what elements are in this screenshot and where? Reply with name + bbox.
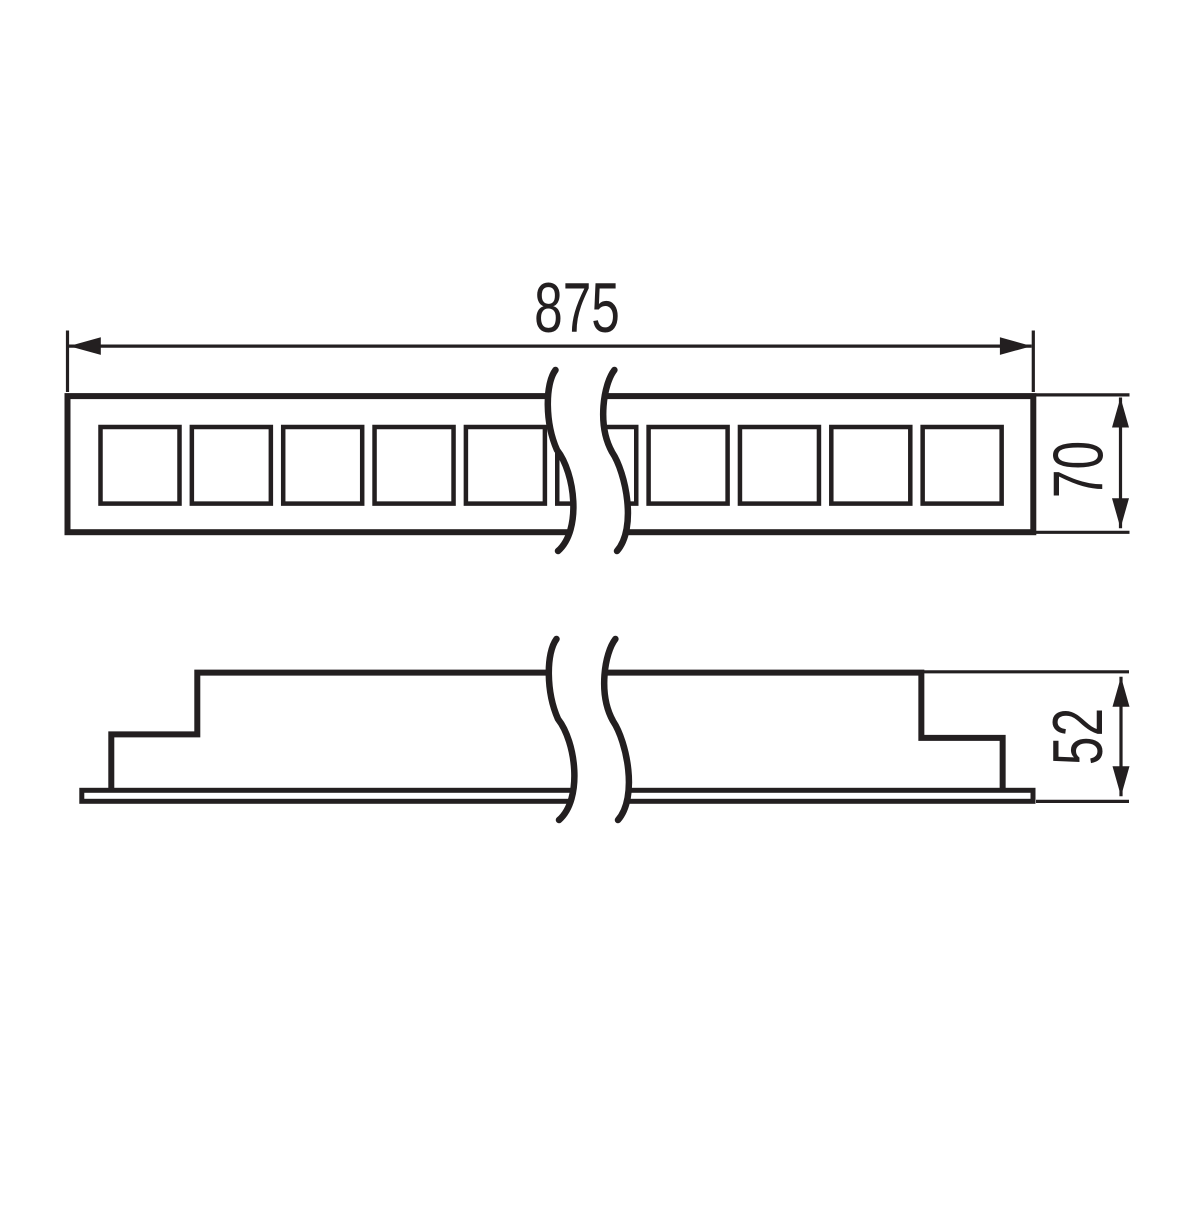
svg-text:70: 70: [1040, 441, 1119, 498]
svg-text:52: 52: [1039, 708, 1118, 765]
svg-text:875: 875: [534, 269, 620, 348]
